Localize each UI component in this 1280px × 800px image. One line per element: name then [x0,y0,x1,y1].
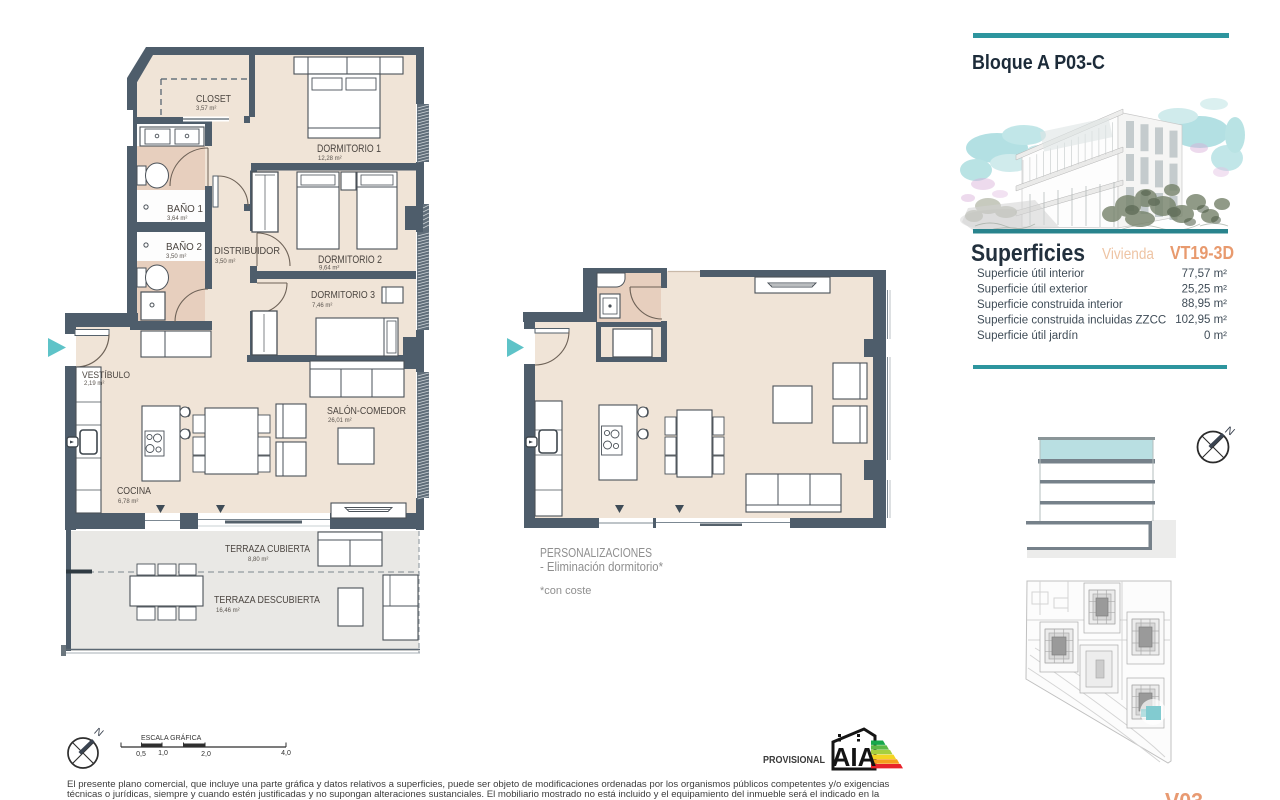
svg-text:3,57 m²: 3,57 m² [196,106,216,112]
svg-text:0 m²: 0 m² [1204,330,1227,342]
svg-text:8,80 m²: 8,80 m² [248,557,268,563]
svg-text:BAÑO 1: BAÑO 1 [167,202,203,215]
svg-text:1,0: 1,0 [158,750,168,757]
svg-text:- Eliminación dormitorio*: - Eliminación dormitorio* [540,560,663,574]
svg-text:PROVISIONAL: PROVISIONAL [763,754,826,766]
svg-text:BAÑO 2: BAÑO 2 [166,240,202,253]
svg-text:Vivienda: Vivienda [1102,246,1154,263]
svg-text:7,46 m²: 7,46 m² [312,303,332,309]
svg-text:DORMITORIO 2: DORMITORIO 2 [318,254,382,266]
svg-text:12,28 m²: 12,28 m² [318,156,342,162]
svg-text:V03: V03 [1165,788,1203,800]
svg-text:técnicas o jurídicas, siempre: técnicas o jurídicas, siempre y cuando e… [67,789,880,800]
svg-text:77,57 m²: 77,57 m² [1182,268,1228,280]
svg-text:Bloque A P03-C: Bloque A P03-C [972,52,1105,74]
svg-text:VESTÍBULO: VESTÍBULO [82,370,130,380]
svg-text:102,95 m²: 102,95 m² [1175,314,1227,326]
svg-text:*con coste: *con coste [540,585,591,597]
svg-text:TERRAZA CUBIERTA: TERRAZA CUBIERTA [225,543,310,555]
svg-text:PERSONALIZACIONES: PERSONALIZACIONES [540,546,652,560]
svg-text:25,25 m²: 25,25 m² [1182,284,1228,296]
svg-text:Superficies: Superficies [971,240,1085,267]
svg-text:26,01 m²: 26,01 m² [328,418,352,424]
svg-text:9,64 m²: 9,64 m² [319,266,339,272]
svg-text:TERRAZA DESCUBIERTA: TERRAZA DESCUBIERTA [214,594,320,606]
svg-text:Superficie útil exterior: Superficie útil exterior [977,284,1088,296]
svg-text:3,50 m²: 3,50 m² [215,259,235,265]
svg-text:DISTRIBUIDOR: DISTRIBUIDOR [214,245,280,257]
svg-text:Superficie útil interior: Superficie útil interior [977,268,1085,280]
svg-text:DORMITORIO 3: DORMITORIO 3 [311,289,375,301]
svg-text:Superficie construida incluida: Superficie construida incluidas ZZCC [977,315,1166,327]
svg-text:AIA: AIA [832,742,877,772]
svg-text:16,46 m²: 16,46 m² [216,608,240,614]
svg-text:2,0: 2,0 [201,751,211,758]
svg-text:CLOSET: CLOSET [196,94,231,105]
svg-text:88,95 m²: 88,95 m² [1182,298,1228,310]
svg-text:ESCALA GRÁFICA: ESCALA GRÁFICA [141,733,202,742]
svg-text:Superficie útil jardín: Superficie útil jardín [977,330,1078,342]
svg-text:DORMITORIO 1: DORMITORIO 1 [317,143,381,155]
svg-text:6,78 m²: 6,78 m² [118,499,138,505]
svg-text:3,64 m²: 3,64 m² [167,216,187,222]
svg-text:SALÓN-COMEDOR: SALÓN-COMEDOR [327,404,406,417]
svg-text:Superficie construida interior: Superficie construida interior [977,299,1123,311]
svg-text:2,19 m²: 2,19 m² [84,381,104,387]
svg-text:0,5: 0,5 [136,751,146,758]
svg-text:4,0: 4,0 [281,750,291,757]
svg-text:VT19-3D: VT19-3D [1170,243,1234,263]
svg-text:3,50 m²: 3,50 m² [166,254,186,260]
svg-text:COCINA: COCINA [117,485,151,497]
